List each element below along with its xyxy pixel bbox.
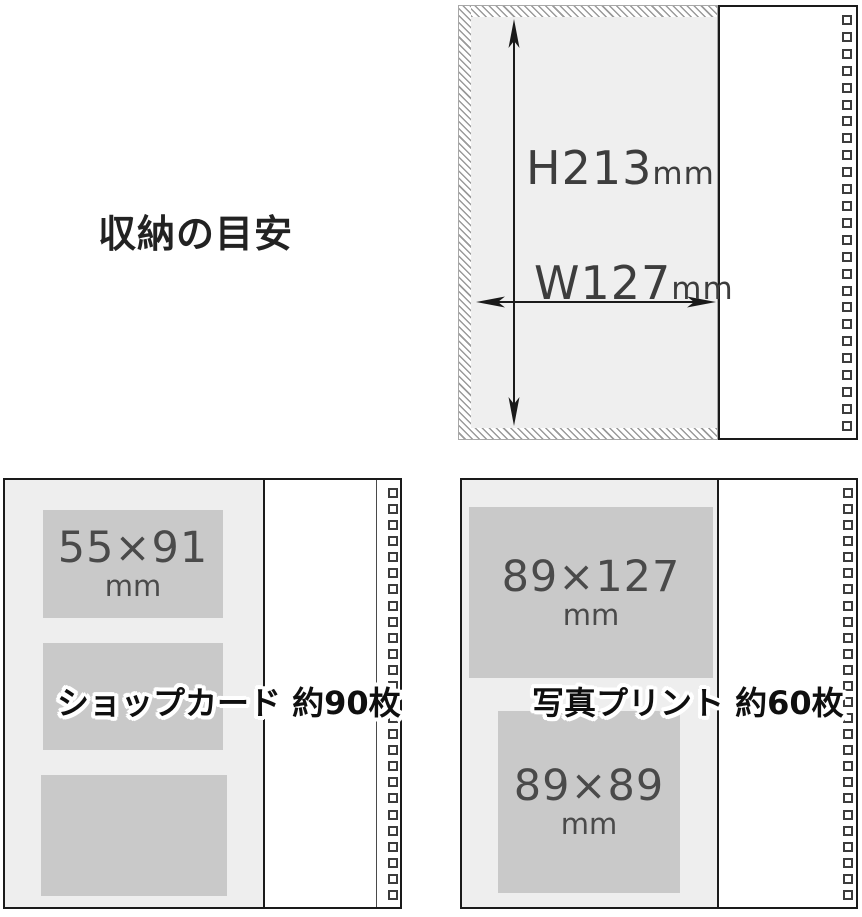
punch-hole (843, 874, 853, 884)
punch-hole (388, 793, 398, 803)
punch-hole (388, 568, 398, 578)
punch-hole (843, 842, 853, 852)
punch-hole (388, 761, 398, 771)
photo-print-panel: 89×127 mm 89×89 mm 写真プリント 約60枚 (460, 478, 858, 909)
height-dimension-label: H213mm (526, 145, 715, 191)
punch-hole (843, 713, 853, 723)
punch-hole (843, 890, 853, 900)
punch-hole (843, 520, 853, 530)
punch-hole (843, 793, 853, 803)
punch-hole (388, 826, 398, 836)
pocket-dimension-panel: H213mm W127mm (458, 5, 858, 440)
punch-hole (388, 665, 398, 675)
card-size-label: 55×91 (58, 526, 208, 571)
width-dimension-label: W127mm (534, 260, 734, 306)
shop-card-panel: 55×91 mm ショップカード 約90枚 (3, 478, 402, 909)
punch-hole (843, 552, 853, 562)
punch-hole (388, 858, 398, 868)
punch-hole (388, 552, 398, 562)
punch-hole (843, 649, 853, 659)
punch-hole (843, 488, 853, 498)
photo-size-label: 89×127 (502, 555, 681, 600)
photo-print-sample-large: 89×127 mm (469, 507, 713, 678)
punch-hole (843, 584, 853, 594)
photo-size-unit: mm (563, 600, 620, 630)
punch-hole (388, 874, 398, 884)
punch-hole (843, 665, 853, 675)
punch-hole (388, 745, 398, 755)
punch-hole (388, 504, 398, 514)
width-value: W127 (534, 256, 671, 310)
punch-hole (388, 890, 398, 900)
punch-hole (843, 729, 853, 739)
dimension-arrows (458, 5, 858, 440)
punch-hole (843, 745, 853, 755)
page-title: 収納の目安 (98, 203, 293, 258)
storage-guide-diagram: 収納の目安 H213mm (0, 0, 862, 917)
punch-hole (843, 810, 853, 820)
punch-hole (388, 488, 398, 498)
punch-hole (388, 777, 398, 787)
shop-card-sample (41, 775, 227, 896)
card-size-unit: mm (105, 571, 162, 601)
punch-hole (388, 810, 398, 820)
punch-hole (388, 584, 398, 594)
height-unit: mm (652, 156, 714, 192)
punch-hole (843, 697, 853, 707)
punch-hole (388, 842, 398, 852)
punch-hole (388, 617, 398, 627)
punch-hole (843, 633, 853, 643)
punch-hole (388, 536, 398, 546)
punch-hole (388, 601, 398, 611)
height-arrow-icon (509, 19, 520, 426)
punch-hole (843, 536, 853, 546)
height-value: H213 (526, 141, 652, 195)
punch-hole (843, 858, 853, 868)
punch-hole (843, 601, 853, 611)
photo-size-unit: mm (561, 809, 618, 839)
punch-hole (843, 681, 853, 691)
punch-hole (843, 568, 853, 578)
shop-card-sample: 55×91 mm (43, 510, 223, 618)
punch-hole (843, 504, 853, 514)
shop-card-caption: ショップカード 約90枚 (57, 678, 401, 724)
punch-hole (388, 649, 398, 659)
punch-hole (843, 617, 853, 627)
punch-hole-column (843, 488, 853, 900)
punch-hole (843, 777, 853, 787)
width-unit: mm (671, 271, 733, 307)
punch-hole (388, 729, 398, 739)
photo-size-label: 89×89 (514, 764, 664, 809)
photo-print-sample-small: 89×89 mm (498, 711, 680, 893)
punch-hole (843, 826, 853, 836)
punch-hole (843, 761, 853, 771)
punch-hole (388, 520, 398, 530)
punch-hole (388, 633, 398, 643)
photo-print-caption: 写真プリント 約60枚 (532, 678, 844, 724)
